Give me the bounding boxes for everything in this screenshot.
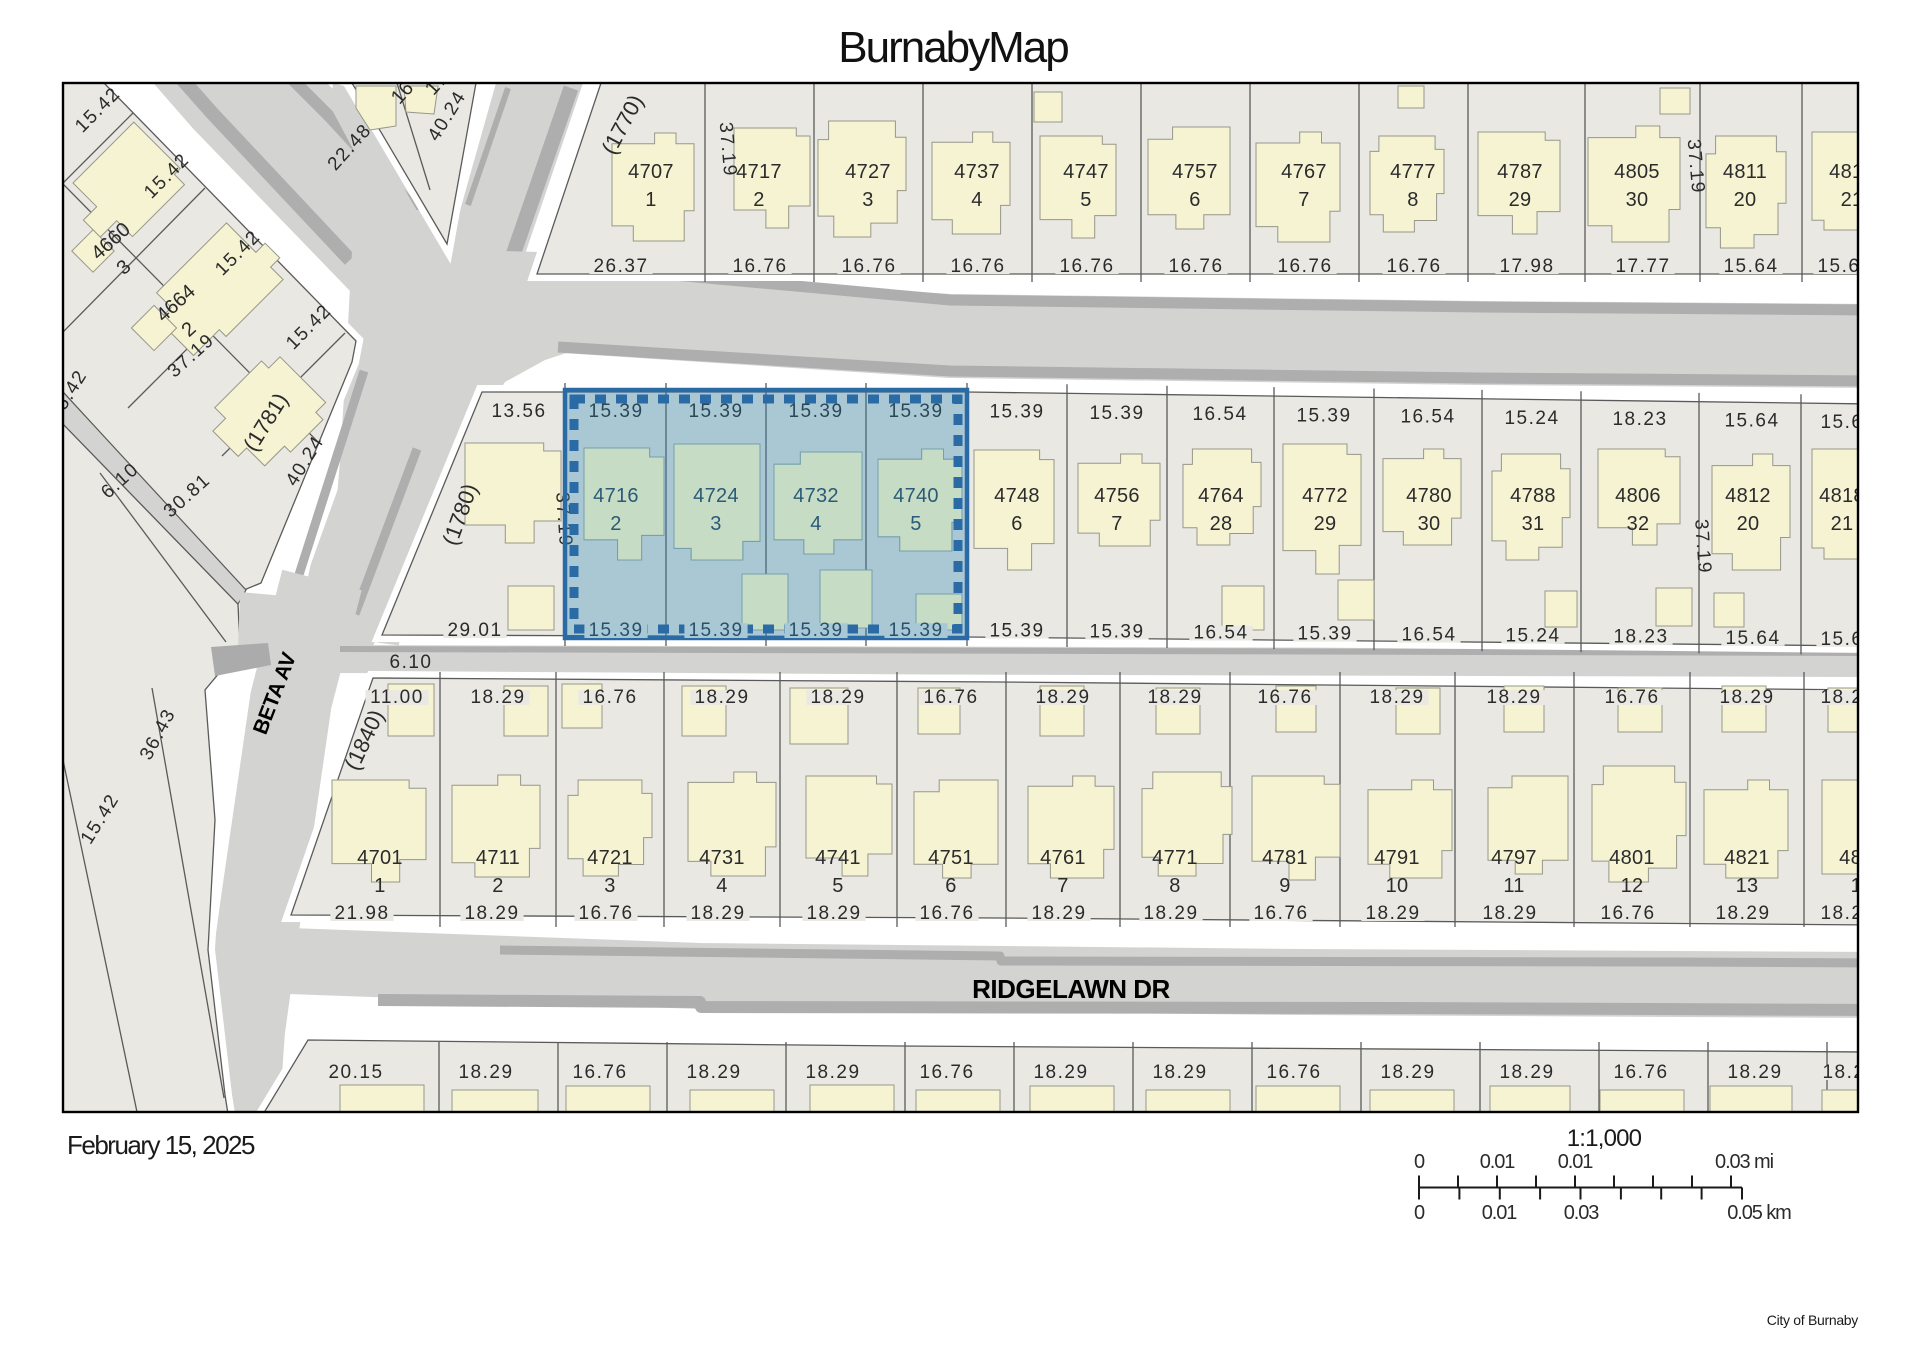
svg-text:4748: 4748 — [994, 485, 1040, 507]
svg-text:26.37: 26.37 — [593, 256, 648, 277]
svg-text:4780: 4780 — [1406, 485, 1452, 507]
svg-text:4740: 4740 — [893, 485, 939, 507]
svg-text:16.76: 16.76 — [950, 256, 1005, 277]
svg-text:6: 6 — [1011, 513, 1022, 535]
svg-text:0.03: 0.03 — [1564, 1202, 1600, 1224]
svg-text:16.76: 16.76 — [582, 687, 637, 708]
svg-text:4747: 4747 — [1063, 161, 1109, 183]
svg-text:6: 6 — [945, 875, 956, 897]
svg-text:15.39: 15.39 — [788, 620, 843, 641]
svg-text:4772: 4772 — [1302, 485, 1348, 507]
svg-text:4: 4 — [716, 875, 727, 897]
svg-text:15.24: 15.24 — [1504, 408, 1559, 429]
svg-text:4787: 4787 — [1497, 161, 1543, 183]
svg-text:18.29: 18.29 — [690, 903, 745, 924]
svg-text:15.39: 15.39 — [989, 621, 1044, 642]
svg-text:20: 20 — [1737, 513, 1760, 535]
svg-text:16.54: 16.54 — [1193, 623, 1248, 644]
svg-text:18.29: 18.29 — [1727, 1062, 1782, 1083]
svg-text:21: 21 — [1831, 513, 1854, 535]
svg-text:4805: 4805 — [1614, 161, 1660, 183]
svg-text:18.29: 18.29 — [1365, 903, 1420, 924]
svg-text:9: 9 — [1279, 875, 1290, 897]
svg-text:20: 20 — [1734, 189, 1757, 211]
svg-text:7: 7 — [1298, 189, 1309, 211]
svg-text:4812: 4812 — [1725, 485, 1771, 507]
svg-text:1: 1 — [374, 875, 385, 897]
svg-text:18.29: 18.29 — [1035, 687, 1090, 708]
svg-text:16.76: 16.76 — [732, 256, 787, 277]
svg-text:18.29: 18.29 — [470, 687, 525, 708]
svg-text:29: 29 — [1314, 513, 1337, 535]
svg-text:0.01: 0.01 — [1558, 1151, 1594, 1173]
svg-text:15.64: 15.64 — [1724, 411, 1779, 432]
svg-text:4717: 4717 — [736, 161, 782, 183]
svg-text:0.05 km: 0.05 km — [1727, 1202, 1791, 1224]
svg-text:4732: 4732 — [793, 485, 839, 507]
svg-text:16.76: 16.76 — [572, 1062, 627, 1083]
svg-text:BurnabyMap: BurnabyMap — [838, 23, 1068, 72]
svg-text:18.29: 18.29 — [1143, 903, 1198, 924]
svg-text:17.98: 17.98 — [1499, 256, 1554, 277]
svg-text:15.64: 15.64 — [1723, 256, 1778, 277]
svg-text:30: 30 — [1626, 189, 1649, 211]
svg-text:16.76: 16.76 — [1257, 687, 1312, 708]
svg-text:18.29: 18.29 — [1031, 903, 1086, 924]
svg-text:4724: 4724 — [693, 485, 739, 507]
svg-text:City of Burnaby: City of Burnaby — [1767, 1312, 1859, 1328]
svg-text:4777: 4777 — [1390, 161, 1436, 183]
svg-text:18.29: 18.29 — [1152, 1062, 1207, 1083]
svg-text:0.03 mi: 0.03 mi — [1715, 1151, 1774, 1173]
svg-text:4716: 4716 — [593, 485, 639, 507]
svg-text:31: 31 — [1522, 513, 1545, 535]
svg-text:6: 6 — [1189, 189, 1200, 211]
svg-text:18.29: 18.29 — [1499, 1062, 1554, 1083]
svg-text:18.29: 18.29 — [1482, 903, 1537, 924]
svg-text:16.76: 16.76 — [1266, 1062, 1321, 1083]
svg-text:18.29: 18.29 — [1719, 687, 1774, 708]
svg-text:18.29: 18.29 — [1715, 903, 1770, 924]
svg-text:4771: 4771 — [1152, 847, 1198, 869]
svg-text:16.76: 16.76 — [1604, 687, 1659, 708]
svg-text:29.01: 29.01 — [447, 620, 502, 641]
svg-text:37.19: 37.19 — [1690, 518, 1715, 574]
svg-text:0.01: 0.01 — [1482, 1202, 1518, 1224]
svg-text:5: 5 — [832, 875, 843, 897]
svg-text:3: 3 — [710, 513, 721, 535]
svg-text:4741: 4741 — [815, 847, 861, 869]
svg-text:2: 2 — [610, 513, 621, 535]
svg-text:4801: 4801 — [1609, 847, 1655, 869]
svg-text:0: 0 — [1414, 1151, 1425, 1173]
svg-text:20.15: 20.15 — [328, 1062, 383, 1083]
svg-text:4727: 4727 — [845, 161, 891, 183]
svg-text:16.76: 16.76 — [841, 256, 896, 277]
svg-text:13: 13 — [1736, 875, 1759, 897]
svg-text:16.76: 16.76 — [1277, 256, 1332, 277]
svg-text:30: 30 — [1418, 513, 1441, 535]
svg-text:18.29: 18.29 — [1147, 687, 1202, 708]
svg-text:13.56: 13.56 — [491, 401, 546, 422]
svg-text:4: 4 — [810, 513, 821, 535]
svg-text:15.24: 15.24 — [1505, 626, 1560, 647]
svg-text:32: 32 — [1627, 513, 1650, 535]
svg-text:16.76: 16.76 — [919, 903, 974, 924]
svg-text:18.29: 18.29 — [686, 1062, 741, 1083]
svg-text:4721: 4721 — [587, 847, 633, 869]
svg-text:1: 1 — [645, 189, 656, 211]
svg-text:7: 7 — [1057, 875, 1068, 897]
svg-text:0: 0 — [1414, 1202, 1425, 1224]
svg-text:15.39: 15.39 — [588, 620, 643, 641]
svg-text:18.29: 18.29 — [805, 1062, 860, 1083]
svg-text:16.76: 16.76 — [1168, 256, 1223, 277]
svg-text:28: 28 — [1210, 513, 1233, 535]
svg-text:16.76: 16.76 — [1613, 1062, 1668, 1083]
svg-text:18.29: 18.29 — [694, 687, 749, 708]
svg-text:RIDGELAWN DR: RIDGELAWN DR — [972, 974, 1170, 1004]
svg-text:16.76: 16.76 — [1253, 903, 1308, 924]
svg-text:4781: 4781 — [1262, 847, 1308, 869]
svg-text:11.00: 11.00 — [370, 687, 424, 708]
svg-text:4707: 4707 — [628, 161, 674, 183]
svg-text:18.29: 18.29 — [458, 1062, 513, 1083]
svg-text:4731: 4731 — [699, 847, 745, 869]
svg-text:17.77: 17.77 — [1615, 256, 1670, 277]
svg-text:3: 3 — [604, 875, 615, 897]
svg-text:4797: 4797 — [1491, 847, 1537, 869]
svg-text:21.98: 21.98 — [334, 903, 389, 924]
svg-text:4788: 4788 — [1510, 485, 1556, 507]
svg-text:4751: 4751 — [928, 847, 974, 869]
svg-text:15.39: 15.39 — [1089, 403, 1144, 424]
svg-text:4: 4 — [971, 189, 982, 211]
svg-text:15.39: 15.39 — [989, 402, 1044, 423]
svg-text:8: 8 — [1407, 189, 1418, 211]
svg-text:15.39: 15.39 — [1089, 622, 1144, 643]
svg-text:16.76: 16.76 — [1386, 256, 1441, 277]
svg-text:10: 10 — [1386, 875, 1409, 897]
svg-text:4764: 4764 — [1198, 485, 1244, 507]
svg-text:4767: 4767 — [1281, 161, 1327, 183]
svg-text:18.29: 18.29 — [810, 687, 865, 708]
svg-text:15.39: 15.39 — [1296, 405, 1351, 426]
svg-text:0.01: 0.01 — [1480, 1151, 1516, 1173]
svg-text:4761: 4761 — [1040, 847, 1086, 869]
svg-text:4711: 4711 — [476, 847, 520, 869]
svg-text:29: 29 — [1509, 189, 1532, 211]
svg-text:2: 2 — [753, 189, 764, 211]
svg-text:4806: 4806 — [1615, 485, 1661, 507]
svg-text:18.23: 18.23 — [1613, 627, 1668, 648]
svg-text:7: 7 — [1111, 513, 1122, 535]
svg-text:18.29: 18.29 — [1486, 687, 1541, 708]
svg-text:8: 8 — [1169, 875, 1180, 897]
svg-text:4756: 4756 — [1094, 485, 1140, 507]
svg-text:5: 5 — [1080, 189, 1091, 211]
svg-text:15.64: 15.64 — [1725, 628, 1780, 649]
svg-text:18.29: 18.29 — [1369, 687, 1424, 708]
svg-text:15.39: 15.39 — [688, 620, 743, 641]
svg-text:16.76: 16.76 — [923, 687, 978, 708]
svg-text:4811: 4811 — [1723, 161, 1767, 183]
svg-text:4821: 4821 — [1724, 847, 1770, 869]
svg-text:February 15, 2025: February 15, 2025 — [67, 1130, 255, 1160]
svg-text:12: 12 — [1621, 875, 1644, 897]
svg-text:16.76: 16.76 — [1600, 903, 1655, 924]
svg-text:15.39: 15.39 — [888, 620, 943, 641]
svg-text:16.76: 16.76 — [919, 1062, 974, 1083]
svg-text:4757: 4757 — [1172, 161, 1218, 183]
svg-text:16.76: 16.76 — [1059, 256, 1114, 277]
svg-text:5: 5 — [910, 513, 921, 535]
svg-text:18.23: 18.23 — [1612, 409, 1667, 430]
svg-text:16.54: 16.54 — [1400, 407, 1455, 428]
svg-text:11: 11 — [1503, 875, 1524, 897]
svg-text:15.39: 15.39 — [1297, 624, 1352, 645]
svg-text:18.29: 18.29 — [464, 903, 519, 924]
svg-text:16.54: 16.54 — [1192, 404, 1247, 425]
svg-text:4701: 4701 — [357, 847, 403, 869]
svg-text:3: 3 — [862, 189, 873, 211]
svg-text:4791: 4791 — [1374, 847, 1420, 869]
svg-text:18.29: 18.29 — [1033, 1062, 1088, 1083]
svg-text:4737: 4737 — [954, 161, 1000, 183]
svg-text:2: 2 — [492, 875, 503, 897]
svg-text:1:1,000: 1:1,000 — [1567, 1125, 1642, 1152]
svg-text:18.29: 18.29 — [806, 903, 861, 924]
svg-text:16.76: 16.76 — [578, 903, 633, 924]
svg-text:6.10: 6.10 — [390, 652, 433, 673]
svg-text:16.54: 16.54 — [1401, 625, 1456, 646]
svg-text:18.29: 18.29 — [1380, 1062, 1435, 1083]
